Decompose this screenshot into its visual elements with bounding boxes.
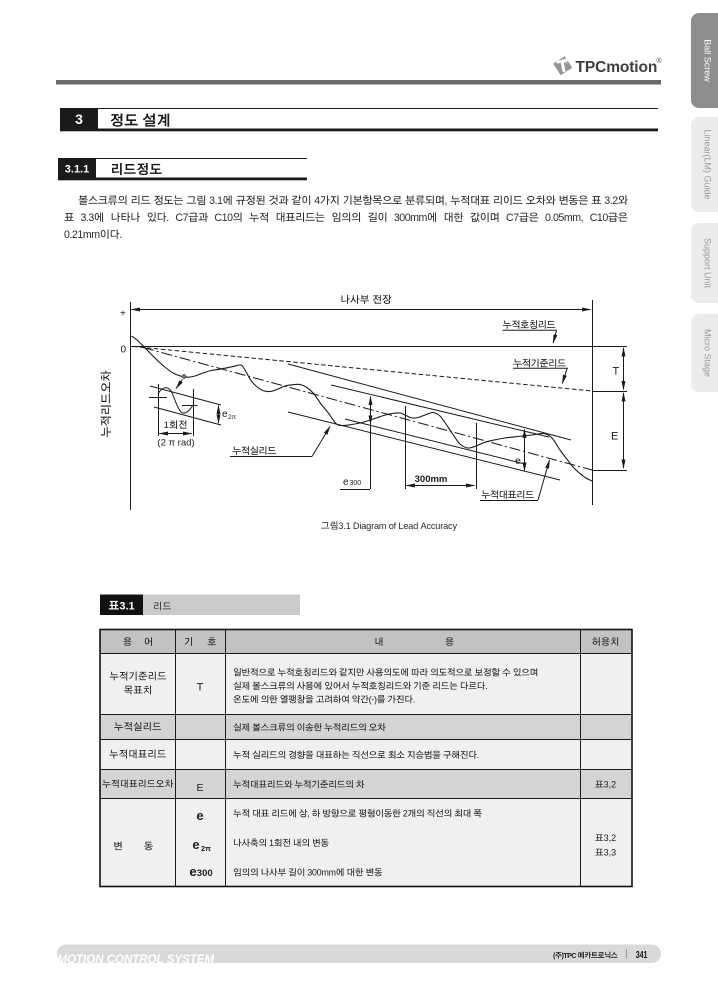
svg-text:1: 1 [164, 420, 169, 431]
svg-text:TPCmotion: TPCmotion [576, 59, 658, 76]
svg-text:3,2: 3,2 [604, 780, 617, 790]
svg-text:3.2: 3.2 [604, 195, 618, 207]
svg-text:2: 2 [403, 809, 408, 819]
svg-text:300mm: 300mm [307, 868, 336, 878]
svg-text:3.1: 3.1 [119, 601, 134, 613]
svg-text:Support Unit: Support Unit [703, 238, 713, 289]
svg-text:2π: 2π [228, 414, 237, 421]
svg-text:0.05mm,: 0.05mm, [545, 212, 583, 224]
svg-text:341: 341 [636, 949, 648, 961]
svg-text:.: . [413, 695, 415, 705]
svg-text:300mm: 300mm [394, 212, 428, 224]
svg-text:,: , [444, 195, 447, 207]
svg-text:0.21mm: 0.21mm [64, 229, 100, 241]
svg-text:300mm: 300mm [415, 474, 448, 485]
svg-text:T: T [197, 682, 204, 694]
svg-text:e: e [515, 455, 521, 467]
svg-text:e: e [343, 477, 349, 488]
svg-text:4: 4 [314, 195, 320, 207]
svg-text:E: E [611, 431, 618, 443]
svg-text:e: e [189, 864, 196, 879]
svg-text:,: , [307, 809, 309, 819]
svg-text:)TPC: )TPC [561, 951, 576, 960]
svg-text:.: . [477, 750, 479, 760]
svg-text:3.1.1: 3.1.1 [65, 164, 89, 176]
svg-text:3,3: 3,3 [604, 848, 617, 858]
svg-text:MOTION CONTROL SYSTEM: MOTION CONTROL SYSTEM [58, 954, 215, 966]
svg-text:C7: C7 [175, 212, 188, 224]
svg-text:3.1: 3.1 [209, 195, 223, 207]
svg-text:(2 π rad): (2 π rad) [157, 438, 194, 449]
svg-text:+: + [120, 308, 126, 319]
svg-text:3.1 Diagram of Lead Accuracy: 3.1 Diagram of Lead Accuracy [338, 521, 457, 531]
svg-text:Micro Stage: Micro Stage [703, 329, 713, 377]
svg-text:E: E [196, 782, 203, 794]
svg-text:1: 1 [269, 838, 274, 848]
svg-text:e: e [196, 808, 203, 823]
svg-text:e: e [192, 837, 199, 852]
svg-text:(-): (-) [369, 695, 377, 705]
svg-text:300: 300 [350, 480, 362, 487]
svg-text:3.3: 3.3 [80, 212, 94, 224]
svg-text:Linear(LM) Guide: Linear(LM) Guide [703, 129, 713, 199]
svg-text:0: 0 [121, 344, 127, 355]
svg-text:300: 300 [197, 868, 213, 879]
svg-text:.: . [485, 681, 487, 691]
svg-text:Ball Screw: Ball Screw [703, 39, 713, 82]
svg-text:.: . [166, 212, 169, 224]
svg-text:®: ® [657, 57, 663, 65]
svg-text:2π: 2π [201, 844, 211, 853]
svg-text:3,2: 3,2 [604, 833, 617, 843]
svg-text:3: 3 [75, 111, 83, 127]
svg-text:C10: C10 [214, 212, 233, 224]
svg-text:C7: C7 [506, 212, 519, 224]
svg-text:.: . [119, 229, 122, 241]
svg-text:C10: C10 [590, 212, 609, 224]
svg-text:T: T [613, 366, 620, 378]
